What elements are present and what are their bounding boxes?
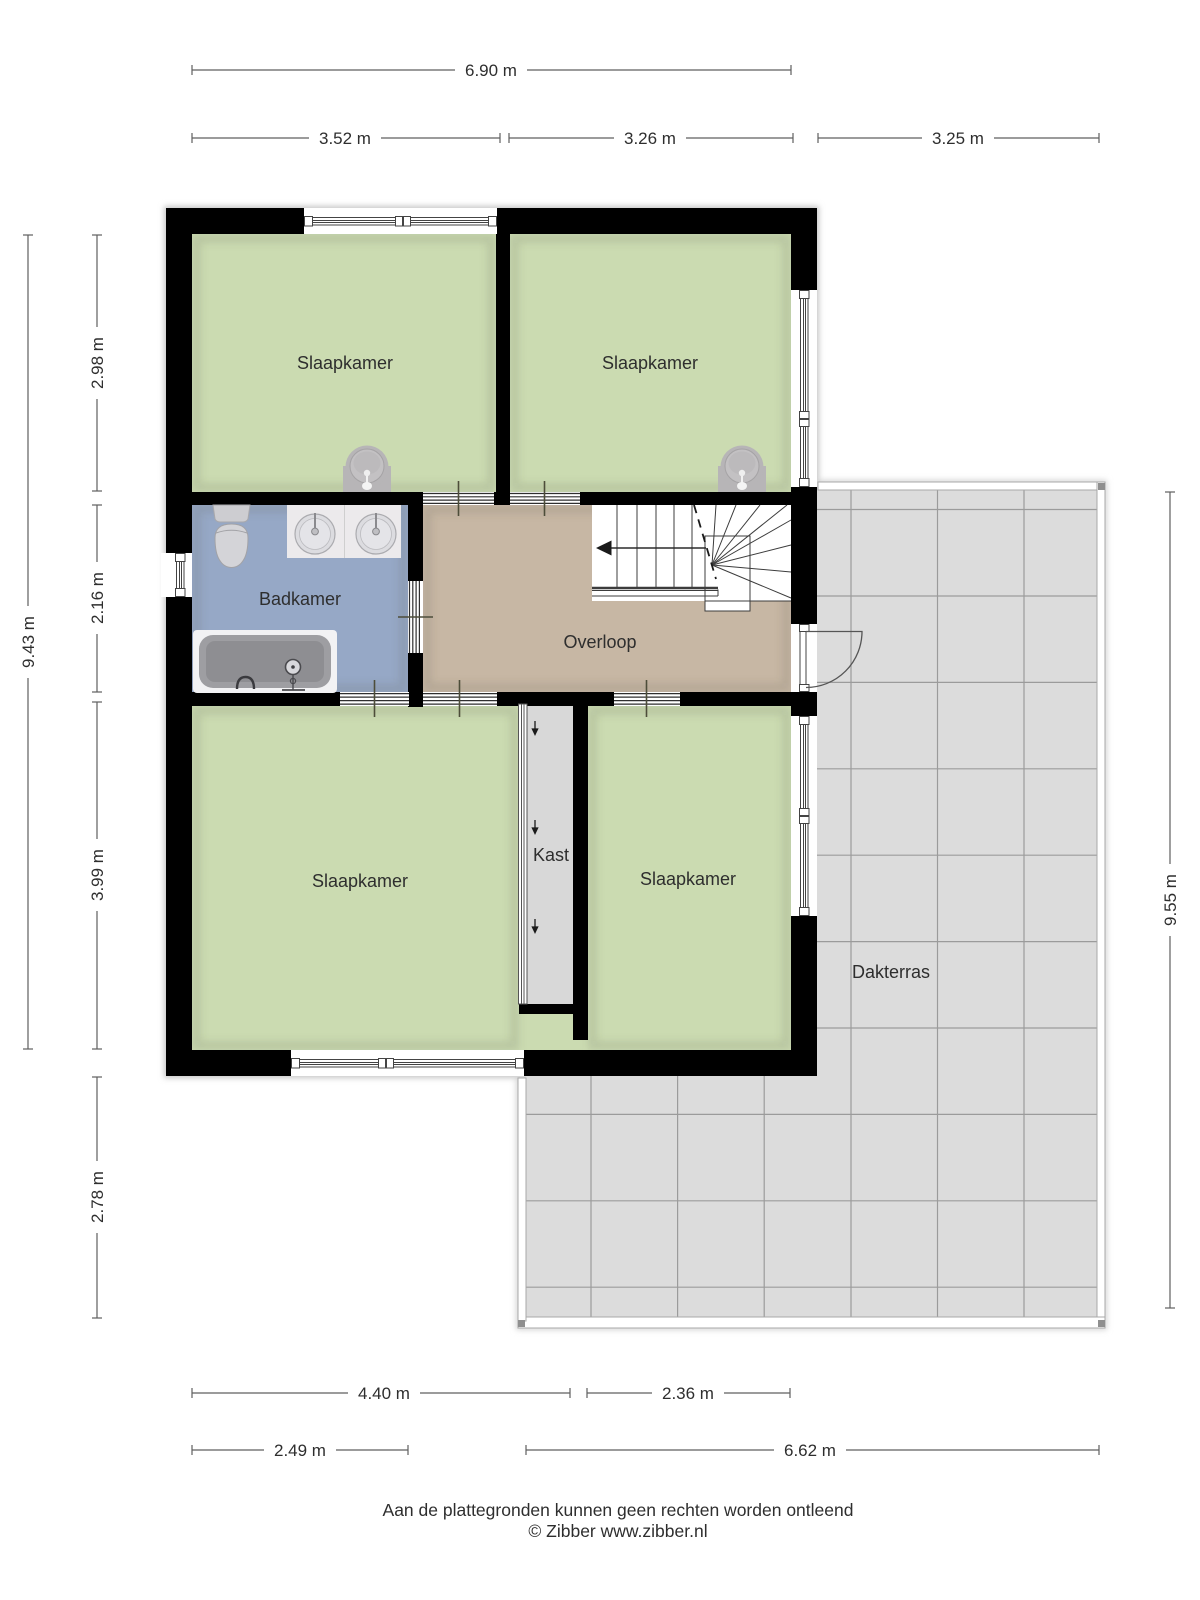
- svg-text:3.52 m: 3.52 m: [319, 129, 371, 148]
- svg-text:Slaapkamer: Slaapkamer: [312, 871, 408, 891]
- svg-text:Slaapkamer: Slaapkamer: [640, 869, 736, 889]
- svg-text:2.36 m: 2.36 m: [662, 1384, 714, 1403]
- svg-text:9.55 m: 9.55 m: [1161, 874, 1180, 926]
- svg-text:Kast: Kast: [533, 845, 569, 865]
- svg-text:2.16 m: 2.16 m: [88, 572, 107, 624]
- svg-text:6.62 m: 6.62 m: [784, 1441, 836, 1460]
- svg-text:2.98 m: 2.98 m: [88, 337, 107, 389]
- svg-text:© Zibber www.zibber.nl: © Zibber www.zibber.nl: [528, 1521, 707, 1541]
- svg-text:6.90 m: 6.90 m: [465, 61, 517, 80]
- svg-text:Slaapkamer: Slaapkamer: [297, 353, 393, 373]
- svg-text:Slaapkamer: Slaapkamer: [602, 353, 698, 373]
- svg-text:3.25 m: 3.25 m: [932, 129, 984, 148]
- svg-text:2.49 m: 2.49 m: [274, 1441, 326, 1460]
- svg-text:Badkamer: Badkamer: [259, 589, 341, 609]
- svg-text:Dakterras: Dakterras: [852, 962, 930, 982]
- svg-text:3.99 m: 3.99 m: [88, 849, 107, 901]
- svg-text:2.78 m: 2.78 m: [88, 1171, 107, 1223]
- svg-text:Overloop: Overloop: [563, 632, 636, 652]
- svg-text:Aan de plattegronden kunnen ge: Aan de plattegronden kunnen geen rechten…: [383, 1500, 854, 1520]
- svg-text:9.43 m: 9.43 m: [19, 616, 38, 668]
- svg-text:3.26 m: 3.26 m: [624, 129, 676, 148]
- svg-text:4.40 m: 4.40 m: [358, 1384, 410, 1403]
